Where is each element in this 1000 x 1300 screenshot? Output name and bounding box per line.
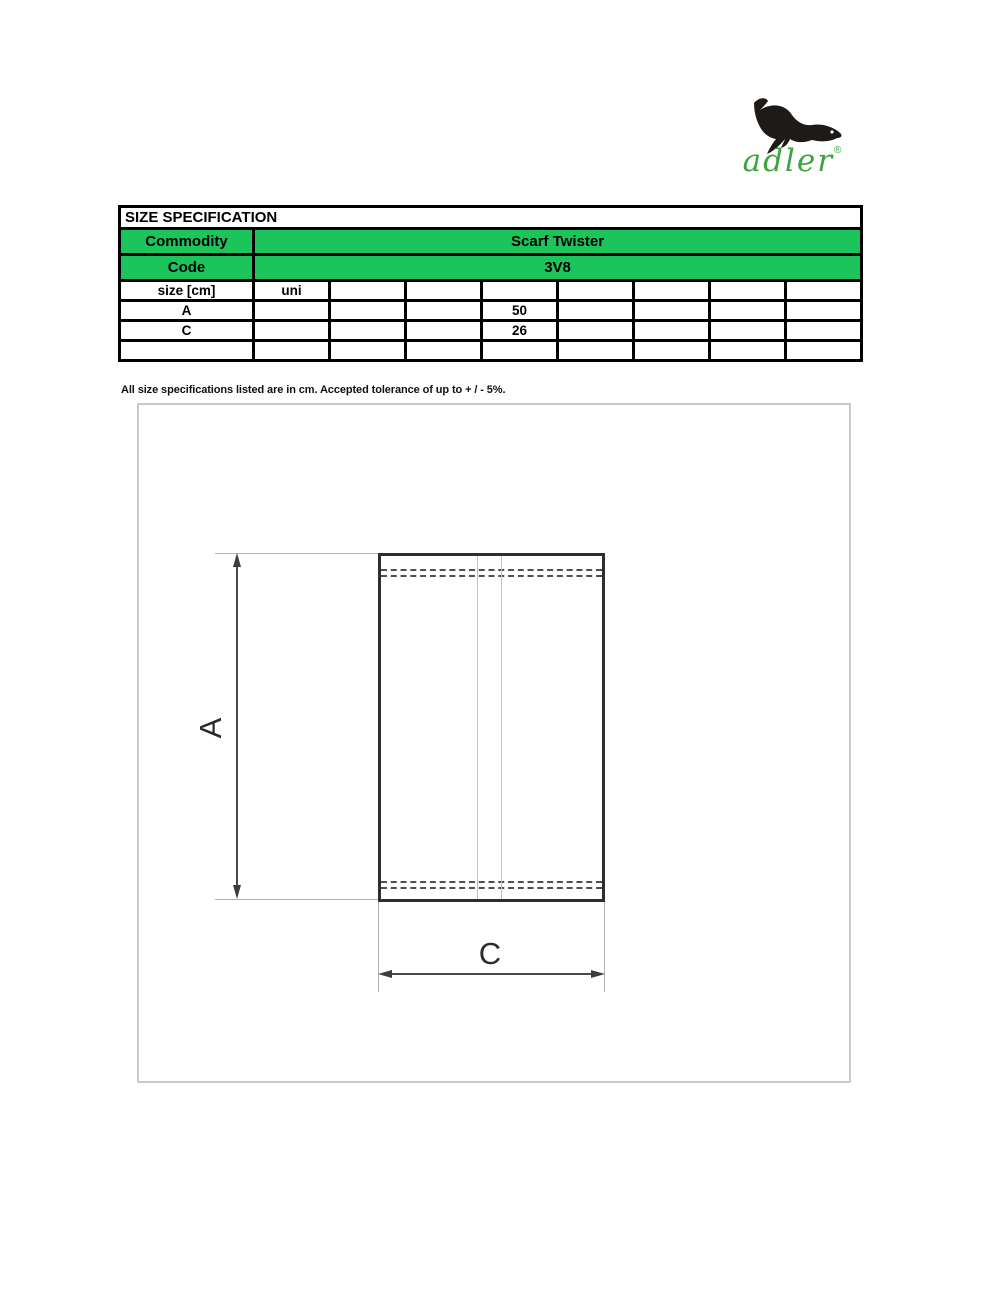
size-cell (330, 301, 406, 321)
extension-line (378, 902, 379, 992)
dimension-a-label: A (194, 712, 228, 744)
size-header-cell (406, 281, 482, 301)
size-cell (710, 301, 786, 321)
dimension-c-label: C (473, 937, 507, 971)
size-header-cell (634, 281, 710, 301)
fold-line (477, 556, 478, 899)
size-row-c: C 26 (120, 321, 862, 341)
stitch-line (381, 881, 602, 883)
size-cell (406, 321, 482, 341)
technical-drawing-panel: A C (137, 403, 851, 1083)
size-cell (254, 341, 330, 361)
size-cell (710, 341, 786, 361)
size-cell (786, 341, 862, 361)
size-cell (330, 341, 406, 361)
extension-line (215, 899, 378, 900)
size-header-cell: size [cm] (120, 281, 254, 301)
size-cell (406, 301, 482, 321)
commodity-value: Scarf Twister (254, 229, 862, 255)
arrow-up-icon (233, 553, 241, 567)
brand-logo: adler® (736, 96, 848, 177)
table-title: SIZE SPECIFICATION (120, 207, 862, 229)
stitch-line (381, 569, 602, 571)
size-cell (254, 321, 330, 341)
size-cell (710, 321, 786, 341)
size-cell (406, 341, 482, 361)
commodity-label: Commodity (120, 229, 254, 255)
size-cell (254, 301, 330, 321)
size-cell (634, 321, 710, 341)
arrow-right-icon (591, 970, 605, 978)
dimension-a-line (236, 557, 238, 891)
size-cell (482, 341, 558, 361)
size-spec-table: SIZE SPECIFICATION Commodity Scarf Twist… (118, 205, 863, 362)
brand-name: adler (743, 143, 834, 179)
size-spec-sheet: adler® SIZE SPECIFICATION Commodity Scar… (0, 0, 1000, 1300)
size-cell (634, 341, 710, 361)
table-title-row: SIZE SPECIFICATION (120, 207, 862, 229)
size-row-empty (120, 341, 862, 361)
size-header-cell (710, 281, 786, 301)
brand-wordmark: adler® (736, 146, 848, 177)
size-cell (786, 321, 862, 341)
code-value: 3V8 (254, 255, 862, 281)
dimension-c-line (382, 973, 602, 975)
size-cell: 50 (482, 301, 558, 321)
stitch-line (381, 575, 602, 577)
size-header-row: size [cm] uni (120, 281, 862, 301)
size-header-cell (330, 281, 406, 301)
size-row-a: A 50 (120, 301, 862, 321)
code-label: Code (120, 255, 254, 281)
registered-trademark-icon: ® (834, 145, 841, 156)
size-cell (558, 341, 634, 361)
scarf-outline (378, 553, 605, 902)
tolerance-footnote: All size specifications listed are in cm… (121, 384, 505, 396)
size-cell: 26 (482, 321, 558, 341)
size-cell: A (120, 301, 254, 321)
stitch-line (381, 887, 602, 889)
commodity-row: Commodity Scarf Twister (120, 229, 862, 255)
code-row: Code 3V8 (120, 255, 862, 281)
size-cell (786, 301, 862, 321)
size-header-cell (786, 281, 862, 301)
size-cell: C (120, 321, 254, 341)
fold-line (501, 556, 502, 899)
extension-line (604, 902, 605, 992)
size-cell (558, 321, 634, 341)
size-header-cell (558, 281, 634, 301)
size-cell (120, 341, 254, 361)
arrow-left-icon (378, 970, 392, 978)
size-cell (330, 321, 406, 341)
arrow-down-icon (233, 885, 241, 899)
size-header-cell (482, 281, 558, 301)
size-cell (558, 301, 634, 321)
size-cell (634, 301, 710, 321)
size-header-cell: uni (254, 281, 330, 301)
